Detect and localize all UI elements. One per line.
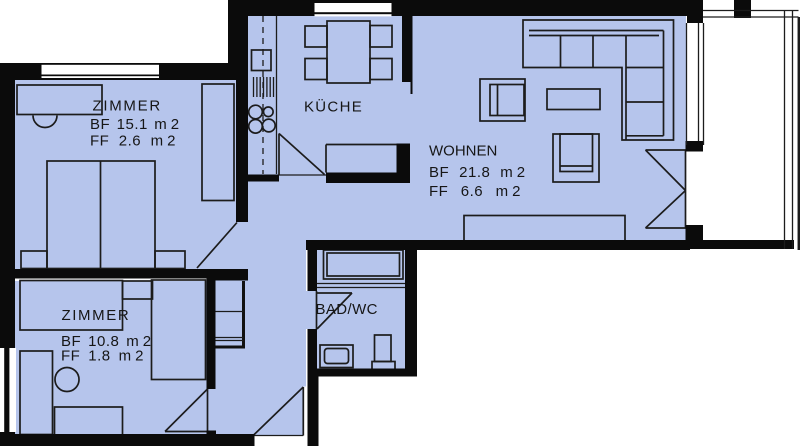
svg-text:ZIMMER: ZIMMER — [62, 307, 131, 324]
svg-text:BF 21.8 m 2: BF 21.8 m 2 — [429, 164, 526, 181]
svg-text:FF 6.6 m 2: FF 6.6 m 2 — [429, 183, 521, 200]
svg-text:BAD/WC: BAD/WC — [316, 301, 378, 318]
svg-text:FF 1.8 m 2: FF 1.8 m 2 — [61, 348, 144, 365]
svg-text:WOHNEN: WOHNEN — [429, 143, 497, 160]
svg-text:FF 2.6 m 2: FF 2.6 m 2 — [90, 133, 176, 150]
svg-text:BF 15.1 m 2: BF 15.1 m 2 — [90, 116, 180, 133]
svg-text:ZIMMER: ZIMMER — [93, 98, 162, 115]
svg-text:KÜCHE: KÜCHE — [304, 98, 363, 116]
